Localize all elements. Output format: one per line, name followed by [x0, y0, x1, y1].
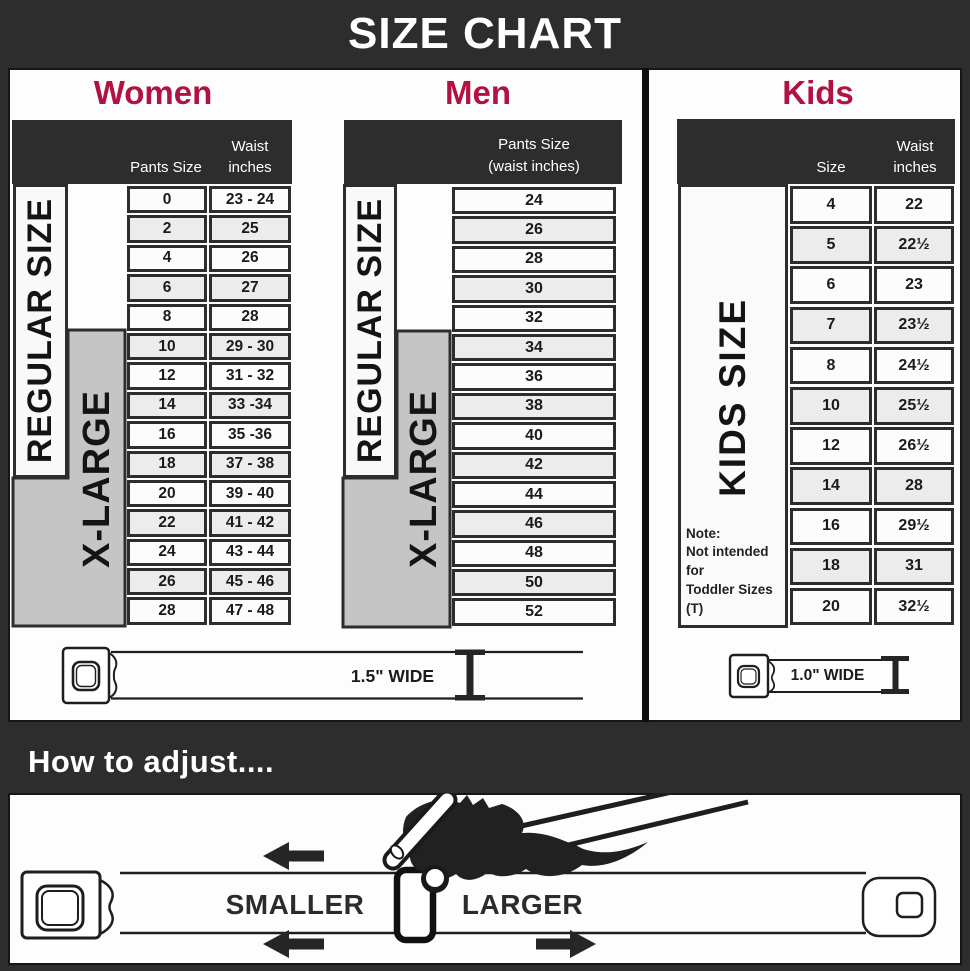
waist-inches-cell: 29½	[874, 508, 954, 546]
table-row: 38	[452, 393, 616, 420]
pants-size-cell: 18	[127, 451, 207, 478]
kids-note-line2: Not intended for	[686, 543, 785, 581]
kids-size-cell: 7	[790, 307, 872, 345]
table-row: 44	[452, 481, 616, 508]
table-row: 0 23 - 24	[127, 186, 291, 213]
adult-belt-icon	[55, 640, 595, 710]
table-row: 24	[452, 187, 616, 214]
women-regular-size-box: REGULAR SIZE	[13, 184, 68, 478]
arrow-left-icon	[263, 842, 324, 870]
table-row: 28	[452, 246, 616, 273]
women-waist-header-line2: inches	[228, 157, 271, 179]
table-row: 12 31 - 32	[127, 362, 291, 389]
table-row: 6 23	[790, 266, 954, 304]
waist-inches-cell: 29 - 30	[209, 333, 291, 360]
kids-note-line1: Note:	[686, 525, 785, 544]
table-row: 10 29 - 30	[127, 333, 291, 360]
women-size-table: 0 23 - 24 2 25 4 26 6 27 8 28	[127, 186, 291, 625]
kids-size-label: KIDS SIZE	[712, 298, 754, 497]
pants-size-cell: 26	[127, 568, 207, 595]
table-row: 24 43 - 44	[127, 539, 291, 566]
waist-inches-cell: 31	[874, 548, 954, 586]
width-marker-icon	[881, 656, 909, 694]
kids-belt-width-label: 1.0" WIDE	[779, 667, 876, 685]
kids-size-cell: 12	[790, 427, 872, 465]
pants-size-cell: 0	[127, 186, 207, 213]
waist-inches-cell: 33 -34	[209, 392, 291, 419]
pants-size-cell: 46	[452, 510, 616, 537]
pants-size-cell: 10	[127, 333, 207, 360]
waist-inches-cell: 22	[874, 186, 954, 224]
section-divider	[642, 68, 649, 722]
waist-inches-cell: 23	[874, 266, 954, 304]
waist-inches-cell: 22½	[874, 226, 954, 264]
kids-waist-header-line1: Waist	[897, 136, 934, 158]
table-row: 10 25½	[790, 387, 954, 425]
men-xlarge-label: X-LARGE	[403, 390, 446, 568]
pants-size-cell: 4	[127, 245, 207, 272]
table-row: 4 26	[127, 245, 291, 272]
waist-inches-cell: 23 - 24	[209, 186, 291, 213]
pants-size-cell: 48	[452, 540, 616, 567]
pants-size-cell: 42	[452, 452, 616, 479]
kids-size-cell: 8	[790, 347, 872, 385]
table-row: 42	[452, 452, 616, 479]
hand-icon	[388, 795, 648, 893]
table-row: 32	[452, 305, 616, 332]
kids-size-table: 4 22 5 22½ 6 23 7 23½ 8 24½	[790, 186, 954, 625]
table-row: 12 26½	[790, 427, 954, 465]
pants-size-cell: 30	[452, 275, 616, 302]
waist-inches-cell: 31 - 32	[209, 362, 291, 389]
women-waist-header-line1: Waist	[232, 136, 269, 158]
kids-waist-header-line2: inches	[893, 157, 936, 179]
adult-belt-width-label: 1.5" WIDE	[345, 666, 440, 687]
pants-size-cell: 26	[452, 216, 616, 243]
kids-size-cell: 10	[790, 387, 872, 425]
men-xlarge-label-box: X-LARGE	[397, 334, 451, 624]
pants-size-cell: 16	[127, 421, 207, 448]
men-header-line1: Pants Size	[452, 134, 616, 156]
how-to-adjust-title: How to adjust....	[28, 744, 274, 780]
men-section-title: Men	[388, 74, 568, 112]
waist-inches-cell: 28	[209, 304, 291, 331]
waist-inches-cell: 27	[209, 274, 291, 301]
smaller-label: SMALLER	[225, 889, 365, 921]
kids-size-cell: 20	[790, 588, 872, 626]
arm-line	[508, 793, 703, 829]
pants-size-cell: 2	[127, 215, 207, 242]
table-row: 4 22	[790, 186, 954, 224]
kids-size-header-text: Size	[816, 157, 845, 179]
kids-size-cell: 14	[790, 467, 872, 505]
men-size-table: 24 26 28 30 32 34 36	[452, 187, 616, 626]
waist-inches-cell: 26	[209, 245, 291, 272]
buckle-latch-shape	[100, 880, 113, 934]
kids-size-box: KIDS SIZE Note: Not intended for Toddler…	[678, 184, 788, 628]
title-banner: SIZE CHART	[0, 0, 970, 68]
table-row: 6 27	[127, 274, 291, 301]
waist-inches-cell: 43 - 44	[209, 539, 291, 566]
women-regular-size-label: REGULAR SIZE	[21, 198, 60, 463]
table-row: 26	[452, 216, 616, 243]
larger-label: LARGER	[460, 889, 585, 921]
waist-inches-cell: 35 -36	[209, 421, 291, 448]
kids-note-line3: Toddler Sizes (T)	[686, 581, 785, 619]
kids-waist-header: Waist inches	[875, 119, 955, 184]
kids-size-cell: 16	[790, 508, 872, 546]
pants-size-cell: 6	[127, 274, 207, 301]
table-row: 14 33 -34	[127, 392, 291, 419]
table-row: 48	[452, 540, 616, 567]
pants-size-cell: 28	[127, 597, 207, 624]
pants-size-cell: 8	[127, 304, 207, 331]
pants-size-cell: 24	[452, 187, 616, 214]
pants-size-cell: 40	[452, 422, 616, 449]
table-row: 14 28	[790, 467, 954, 505]
kids-size-label-wrap: KIDS SIZE	[681, 217, 785, 577]
table-row: 18 31	[790, 548, 954, 586]
pants-size-cell: 52	[452, 598, 616, 625]
waist-inches-cell: 28	[874, 467, 954, 505]
waist-inches-cell: 45 - 46	[209, 568, 291, 595]
waist-inches-cell: 25½	[874, 387, 954, 425]
women-waist-header: Waist inches	[209, 120, 291, 184]
waist-inches-cell: 37 - 38	[209, 451, 291, 478]
men-pants-size-header: Pants Size (waist inches)	[452, 120, 616, 184]
men-regular-size-box: REGULAR SIZE	[343, 184, 397, 478]
table-row: 40	[452, 422, 616, 449]
table-row: 52	[452, 598, 616, 625]
waist-inches-cell: 32½	[874, 588, 954, 626]
women-xlarge-label: X-LARGE	[76, 390, 119, 568]
table-row: 20 39 - 40	[127, 480, 291, 507]
women-xlarge-label-box: X-LARGE	[68, 334, 126, 624]
kids-size-header: Size	[790, 119, 872, 184]
kids-section-title: Kids	[728, 74, 908, 112]
pants-size-cell: 38	[452, 393, 616, 420]
pants-size-cell: 36	[452, 363, 616, 390]
table-row: 50	[452, 569, 616, 596]
waist-inches-cell: 25	[209, 215, 291, 242]
table-row: 22 41 - 42	[127, 509, 291, 536]
pants-size-cell: 28	[452, 246, 616, 273]
women-section-title: Women	[58, 74, 248, 112]
waist-inches-cell: 39 - 40	[209, 480, 291, 507]
kids-size-cell: 6	[790, 266, 872, 304]
table-row: 30	[452, 275, 616, 302]
table-row: 2 25	[127, 215, 291, 242]
kids-size-cell: 5	[790, 226, 872, 264]
kids-note: Note: Not intended for Toddler Sizes (T)	[686, 525, 785, 619]
pants-size-cell: 20	[127, 480, 207, 507]
table-row: 34	[452, 334, 616, 361]
waist-inches-cell: 47 - 48	[209, 597, 291, 624]
table-row: 8 24½	[790, 347, 954, 385]
waist-inches-cell: 26½	[874, 427, 954, 465]
pants-size-cell: 12	[127, 362, 207, 389]
table-row: 20 32½	[790, 588, 954, 626]
women-pants-size-header-text: Pants Size	[130, 157, 202, 179]
waist-inches-cell: 41 - 42	[209, 509, 291, 536]
kids-size-cell: 18	[790, 548, 872, 586]
table-row: 8 28	[127, 304, 291, 331]
width-marker-icon	[455, 650, 485, 701]
pants-size-cell: 44	[452, 481, 616, 508]
kids-size-cell: 4	[790, 186, 872, 224]
waist-inches-cell: 23½	[874, 307, 954, 345]
men-header-line2: (waist inches)	[452, 156, 616, 178]
table-row: 46	[452, 510, 616, 537]
pants-size-cell: 24	[127, 539, 207, 566]
table-row: 7 23½	[790, 307, 954, 345]
size-chart-infographic: SIZE CHART Women Men Kids Pants Size Wai…	[0, 0, 970, 971]
adjust-belt-illustration	[8, 793, 962, 965]
table-row: 16 35 -36	[127, 421, 291, 448]
pants-size-cell: 22	[127, 509, 207, 536]
table-row: 5 22½	[790, 226, 954, 264]
pants-size-cell: 34	[452, 334, 616, 361]
women-pants-size-header: Pants Size	[125, 120, 207, 184]
table-row: 18 37 - 38	[127, 451, 291, 478]
pants-size-cell: 50	[452, 569, 616, 596]
pants-size-cell: 14	[127, 392, 207, 419]
table-row: 26 45 - 46	[127, 568, 291, 595]
men-regular-size-label: REGULAR SIZE	[351, 198, 390, 463]
table-row: 36	[452, 363, 616, 390]
pants-size-cell: 32	[452, 305, 616, 332]
table-row: 28 47 - 48	[127, 597, 291, 624]
table-row: 16 29½	[790, 508, 954, 546]
waist-inches-cell: 24½	[874, 347, 954, 385]
page-title: SIZE CHART	[348, 9, 622, 59]
